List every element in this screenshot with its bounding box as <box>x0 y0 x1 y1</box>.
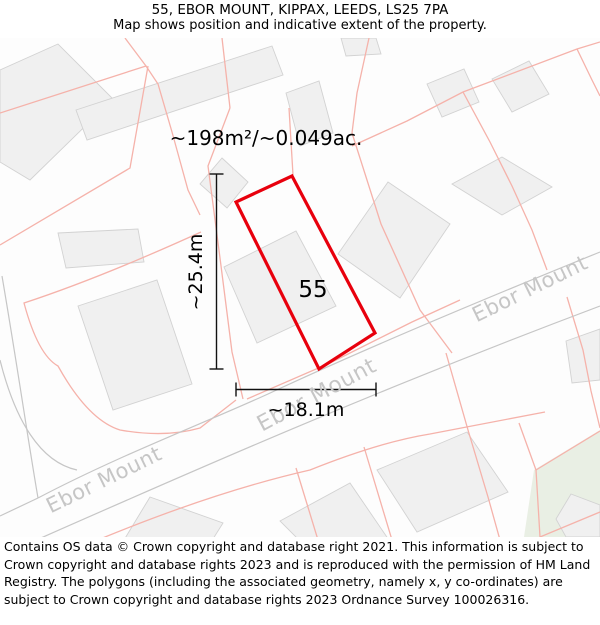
page-title: 55, EBOR MOUNT, KIPPAX, LEEDS, LS25 7PA <box>0 2 600 18</box>
header: 55, EBOR MOUNT, KIPPAX, LEEDS, LS25 7PA … <box>0 2 600 34</box>
dimension-horizontal-label: ~18.1m <box>268 399 345 421</box>
map-image: Ebor Mount Ebor Mount Ebor Mount ~198m²/… <box>0 0 600 625</box>
plot-number-label: 55 <box>298 277 327 303</box>
copyright-notice: Contains OS data © Crown copyright and d… <box>4 538 598 608</box>
dimension-vertical-label: ~25.4m <box>185 234 207 311</box>
map-canvas: Ebor Mount Ebor Mount Ebor Mount ~198m²/… <box>0 0 600 625</box>
page-subtitle: Map shows position and indicative extent… <box>0 18 600 34</box>
area-size-label: ~198m²/~0.049ac. <box>170 126 363 150</box>
building-footprint <box>341 38 381 56</box>
